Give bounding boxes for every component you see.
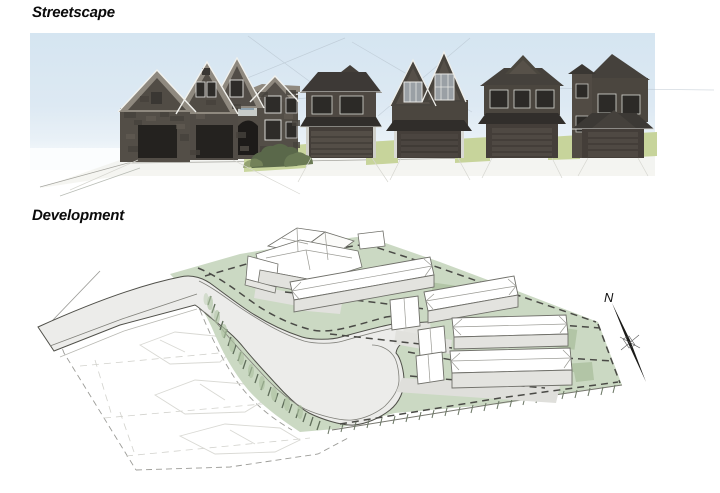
svg-text:Streetscape: Streetscape [32,4,115,21]
svg-text:Development: Development [32,207,125,224]
svg-text:N: N [604,290,614,305]
